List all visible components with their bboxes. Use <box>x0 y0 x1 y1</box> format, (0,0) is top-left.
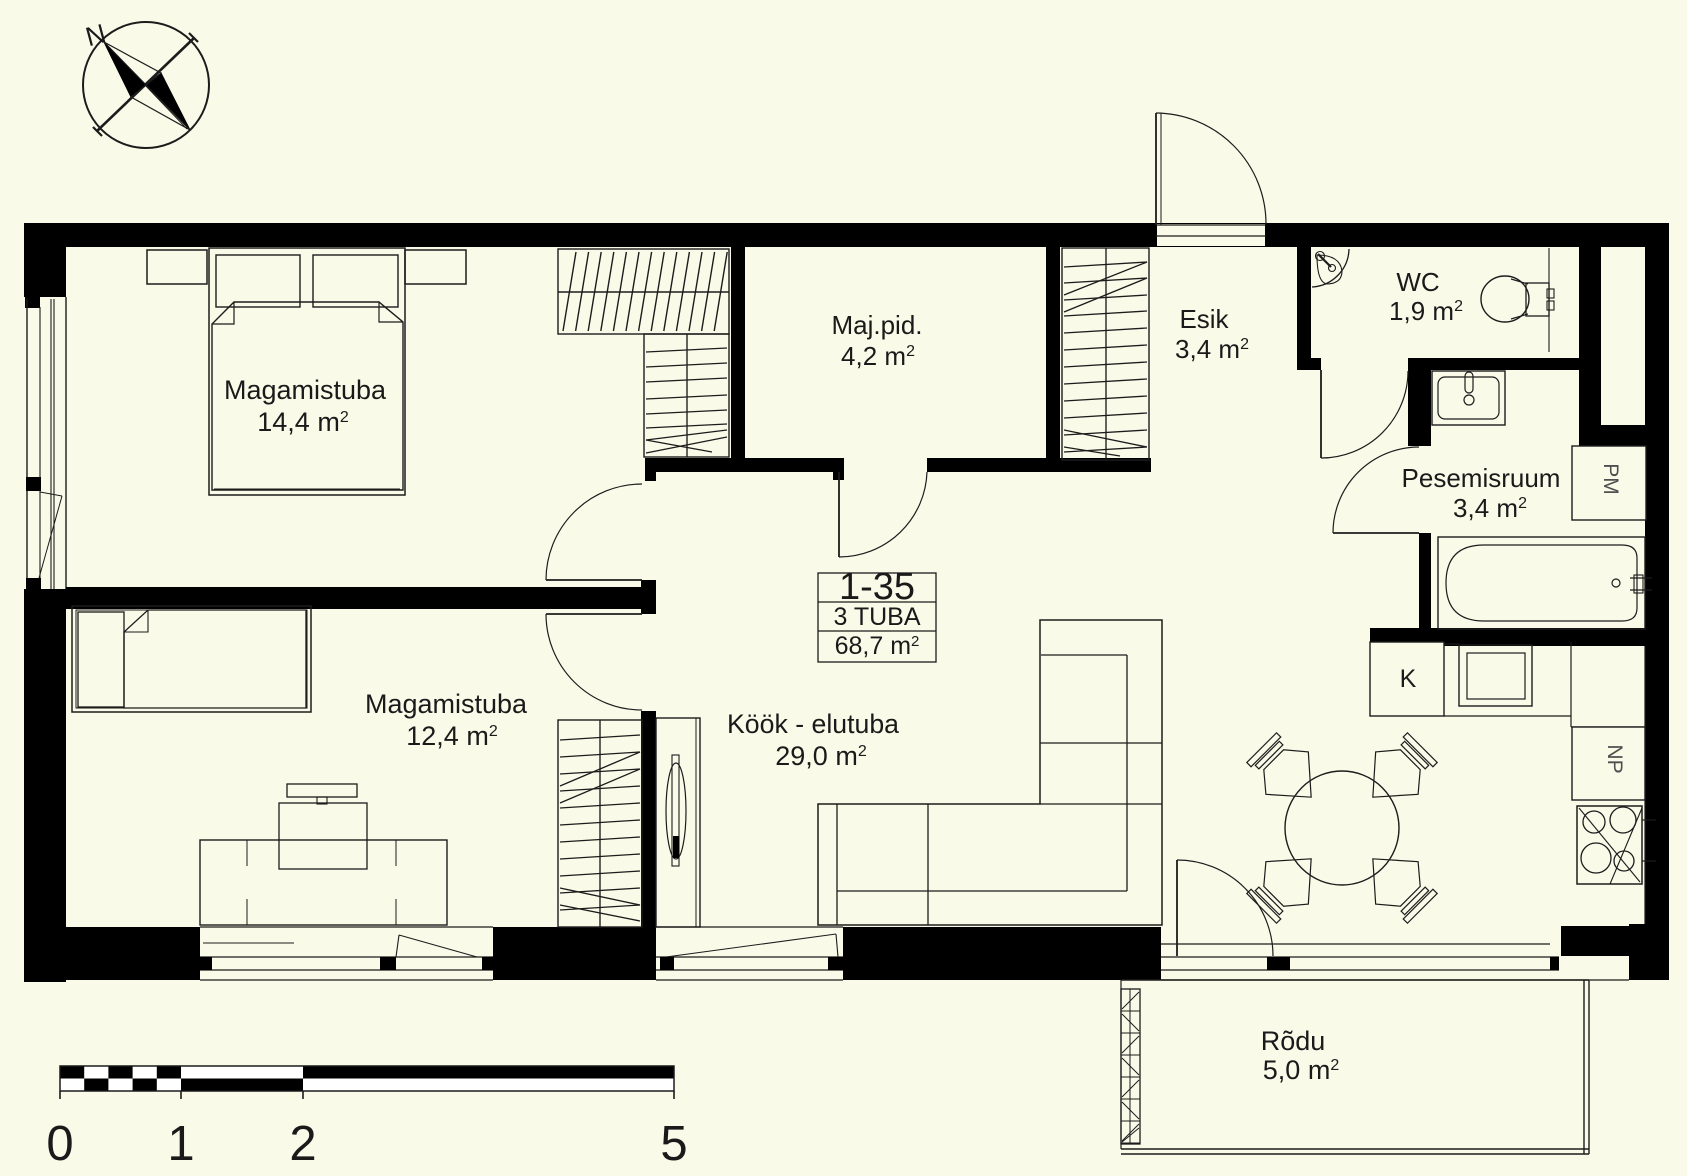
svg-text:5: 5 <box>660 1117 687 1171</box>
svg-text:12,4 m2: 12,4 m2 <box>406 721 498 751</box>
svg-text:NP: NP <box>1603 744 1626 773</box>
svg-text:3,4 m2: 3,4 m2 <box>1175 334 1249 364</box>
svg-text:Köök - elutuba: Köök - elutuba <box>727 709 900 739</box>
svg-text:Esik: Esik <box>1179 304 1229 334</box>
svg-text:Rõdu: Rõdu <box>1261 1026 1326 1056</box>
svg-text:PM: PM <box>1599 463 1622 495</box>
svg-text:3,4 m2: 3,4 m2 <box>1453 493 1527 523</box>
svg-text:2: 2 <box>289 1117 316 1171</box>
svg-text:4,2 m2: 4,2 m2 <box>841 341 915 371</box>
svg-text:0: 0 <box>46 1117 73 1171</box>
svg-text:1,9 m2: 1,9 m2 <box>1389 296 1463 326</box>
svg-text:Magamistuba: Magamistuba <box>365 689 528 719</box>
svg-text:29,0 m2: 29,0 m2 <box>775 741 867 771</box>
svg-text:WC: WC <box>1396 267 1439 297</box>
svg-text:Magamistuba: Magamistuba <box>224 375 387 405</box>
svg-text:Pesemisruum: Pesemisruum <box>1402 463 1561 493</box>
svg-text:K: K <box>1400 665 1417 693</box>
svg-text:68,7 m2: 68,7 m2 <box>835 632 920 660</box>
svg-text:Maj.pid.: Maj.pid. <box>831 310 922 340</box>
svg-text:3 TUBA: 3 TUBA <box>833 603 920 631</box>
svg-text:N: N <box>82 18 109 52</box>
svg-text:14,4 m2: 14,4 m2 <box>257 407 349 437</box>
svg-text:5,0 m2: 5,0 m2 <box>1263 1055 1340 1085</box>
svg-text:1-35: 1-35 <box>839 566 915 608</box>
svg-text:1: 1 <box>167 1117 194 1171</box>
